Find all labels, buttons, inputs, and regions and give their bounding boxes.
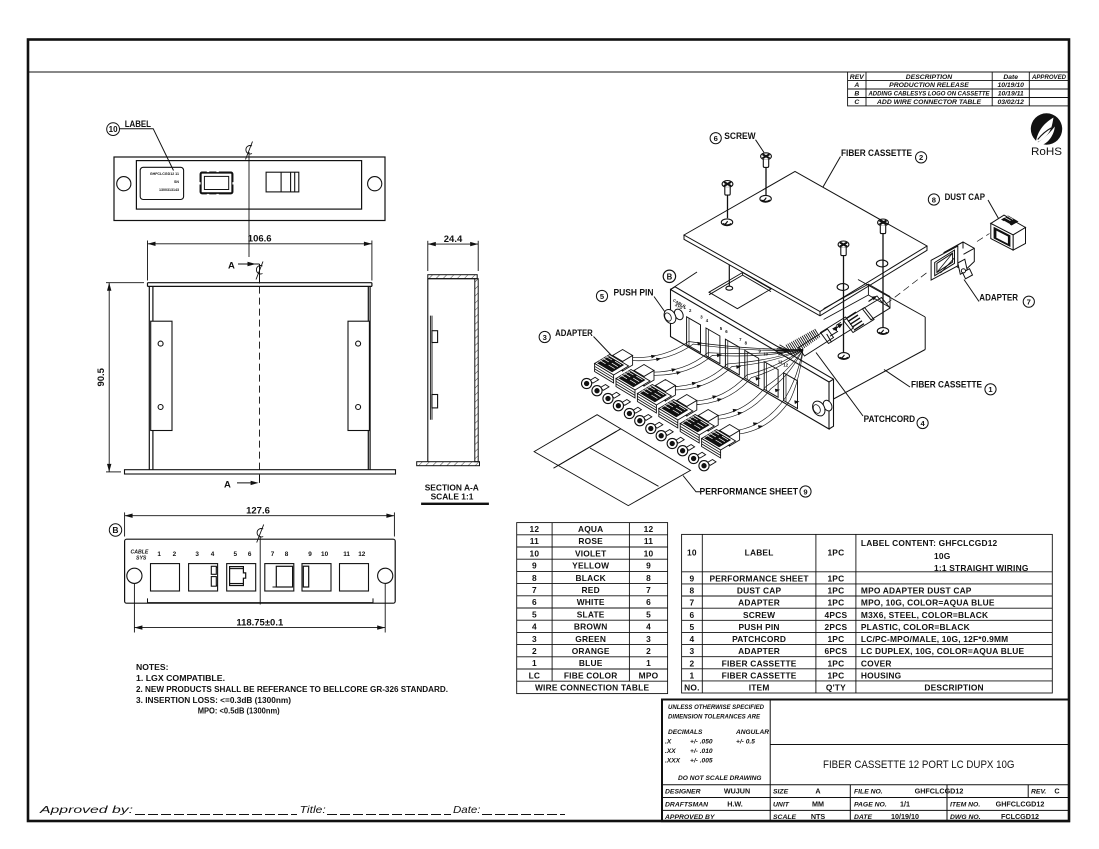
svg-text:3: 3 (195, 551, 199, 558)
svg-text:ITEM: ITEM (749, 683, 770, 693)
svg-text:+/- 0.5: +/- 0.5 (736, 738, 755, 745)
svg-text:REV.: REV. (1031, 789, 1046, 796)
svg-text:4: 4 (646, 622, 651, 632)
svg-text:PERFORMANCE SHEET: PERFORMANCE SHEET (709, 573, 809, 583)
svg-text:MPO, 10G, COLOR=AQUA BLUE: MPO, 10G, COLOR=AQUA BLUE (861, 598, 995, 608)
svg-text:DRAFTSMAN: DRAFTSMAN (665, 801, 709, 808)
svg-text:8: 8 (285, 551, 289, 558)
svg-text:11: 11 (343, 551, 350, 558)
svg-text:7: 7 (532, 585, 537, 595)
svg-text:NOTES:: NOTES: (136, 663, 169, 672)
svg-text:AQUA: AQUA (578, 524, 603, 534)
svg-text:2: 2 (532, 646, 537, 656)
svg-text:1PC: 1PC (827, 658, 844, 668)
svg-text:A: A (815, 787, 820, 796)
svg-text:REV: REV (850, 74, 865, 81)
svg-text:90.5: 90.5 (96, 367, 107, 386)
svg-text:FIBER CASSETTE: FIBER CASSETTE (722, 658, 797, 668)
svg-text:6: 6 (714, 134, 718, 143)
svg-text:8: 8 (689, 586, 694, 596)
svg-text:ADAPTER: ADAPTER (979, 293, 1018, 303)
svg-text:MPO: MPO (639, 670, 659, 680)
svg-text:ANGULAR: ANGULAR (735, 729, 769, 736)
svg-text:3. INSERTION LOSS: <=0.3dB (1: 3. INSERTION LOSS: <=0.3dB (1300nm) (136, 696, 291, 705)
svg-text:H.W.: H.W. (727, 799, 743, 808)
svg-text:PATCHCORD: PATCHCORD (732, 634, 786, 644)
svg-text:2PCS: 2PCS (825, 622, 848, 632)
svg-text:2: 2 (173, 551, 177, 558)
svg-text:11: 11 (644, 536, 653, 546)
svg-text:5: 5 (646, 609, 651, 619)
svg-text:9: 9 (646, 561, 651, 571)
svg-text:12: 12 (644, 524, 654, 534)
svg-text:PLASTIC, COLOR=BLACK: PLASTIC, COLOR=BLACK (861, 622, 970, 632)
svg-text:1PC: 1PC (827, 598, 844, 608)
svg-text:NTS: NTS (811, 812, 826, 821)
svg-text:UNIT: UNIT (773, 801, 790, 808)
svg-text:GHFCLCGD12 11: GHFCLCGD12 11 (150, 172, 179, 176)
svg-text:LABEL: LABEL (125, 119, 152, 129)
svg-text:APPROVED BY: APPROVED BY (664, 814, 716, 821)
svg-text:4: 4 (532, 622, 537, 632)
svg-text:9: 9 (689, 573, 694, 583)
svg-text:6: 6 (646, 597, 651, 607)
svg-text:1/1: 1/1 (900, 799, 910, 808)
svg-text:11: 11 (530, 536, 539, 546)
svg-text:A: A (853, 82, 859, 89)
svg-text:DATE: DATE (854, 814, 872, 821)
svg-text:M3X6, STEEL, COLOR=BLACK: M3X6, STEEL, COLOR=BLACK (861, 610, 988, 620)
svg-text:2: 2 (689, 658, 694, 668)
svg-text:3: 3 (543, 333, 547, 342)
svg-text:DO NOT SCALE DRAWING: DO NOT SCALE DRAWING (678, 775, 762, 782)
svg-text:RoHS: RoHS (1031, 146, 1062, 158)
svg-text:A: A (228, 261, 235, 272)
svg-text:LC DUPLEX, 10G, COLOR=AQUA BLU: LC DUPLEX, 10G, COLOR=AQUA BLUE (861, 646, 1025, 656)
svg-text:WUJUN: WUJUN (724, 787, 750, 796)
svg-text:FIBER CASSETTE: FIBER CASSETTE (911, 379, 982, 389)
svg-text:+/- .005: +/- .005 (690, 757, 713, 764)
svg-text:PAGE NO.: PAGE NO. (854, 801, 887, 808)
svg-text:BROWN: BROWN (574, 622, 608, 632)
svg-text:DECIMALS: DECIMALS (668, 729, 703, 736)
svg-text:DIMENSION TOLERANCES ARE: DIMENSION TOLERANCES ARE (668, 714, 761, 721)
svg-text:8: 8 (932, 195, 936, 204)
svg-text:DESIGNER: DESIGNER (665, 789, 701, 796)
svg-text:DESCRIPTION: DESCRIPTION (924, 683, 983, 693)
svg-text:3: 3 (646, 634, 651, 644)
svg-text:4: 4 (211, 551, 215, 558)
svg-text:ADAPTER: ADAPTER (738, 598, 780, 608)
svg-text:SCALE 1:1: SCALE 1:1 (431, 492, 474, 502)
svg-text:4PCS: 4PCS (825, 610, 848, 620)
svg-text:FCLCGD12: FCLCGD12 (1001, 812, 1039, 821)
svg-text:1. LGX COMPATIBLE.: 1. LGX COMPATIBLE. (136, 674, 225, 683)
svg-text:ORANGE: ORANGE (572, 646, 610, 656)
svg-text:DWG NO.: DWG NO. (950, 814, 981, 821)
svg-text:2: 2 (919, 153, 923, 162)
svg-text:Approved by:: Approved by: (38, 804, 133, 816)
svg-text:10: 10 (109, 125, 118, 134)
svg-text:9: 9 (803, 487, 807, 496)
svg-text:12: 12 (358, 551, 366, 558)
svg-text:LC: LC (529, 670, 541, 680)
svg-text:+/- .010: +/- .010 (690, 748, 713, 755)
svg-text:1: 1 (689, 670, 694, 680)
svg-text:Q'TY: Q'TY (826, 683, 846, 693)
svg-text:1: 1 (532, 658, 537, 668)
svg-text:03/02/12: 03/02/12 (997, 99, 1024, 106)
svg-text:C: C (854, 99, 859, 106)
svg-text:+/- .050: +/- .050 (690, 738, 713, 745)
svg-text:WHITE: WHITE (577, 597, 605, 607)
svg-text:ADAPTER: ADAPTER (555, 328, 593, 338)
svg-text:FIBE COLOR: FIBE COLOR (564, 670, 618, 680)
svg-text:1PC: 1PC (827, 670, 844, 680)
svg-text:FIBER CASSETTE: FIBER CASSETTE (722, 670, 797, 680)
svg-text:7: 7 (646, 585, 651, 595)
svg-text:106.6: 106.6 (248, 234, 272, 245)
svg-text:COVER: COVER (861, 658, 892, 668)
svg-text:1: 1 (157, 551, 161, 558)
svg-text:HOUSING: HOUSING (861, 670, 902, 680)
svg-text:127.6: 127.6 (246, 505, 270, 516)
svg-text:6PCS: 6PCS (825, 646, 848, 656)
svg-text:1PC: 1PC (827, 586, 844, 596)
svg-text:C: C (1054, 787, 1059, 796)
svg-text:SN: SN (174, 180, 179, 184)
svg-text:7: 7 (271, 551, 275, 558)
svg-text:1PC: 1PC (827, 634, 844, 644)
svg-text:DESCRIPTION: DESCRIPTION (906, 74, 954, 81)
svg-text:12: 12 (530, 524, 540, 534)
svg-text:B: B (854, 91, 859, 98)
svg-text:APPROVED: APPROVED (1031, 74, 1066, 81)
svg-text:SIZE: SIZE (773, 789, 789, 796)
svg-text:SYS: SYS (136, 556, 147, 562)
svg-text:SCALE: SCALE (773, 814, 797, 821)
svg-text:4: 4 (689, 634, 694, 644)
svg-text:PATCHCORD: PATCHCORD (864, 414, 916, 424)
svg-text:1:1 STRAIGHT WIRING: 1:1 STRAIGHT WIRING (934, 563, 1029, 573)
svg-text:VIOLET: VIOLET (575, 548, 607, 558)
svg-text:B: B (667, 272, 673, 281)
svg-text:10: 10 (644, 548, 654, 558)
svg-text:3: 3 (689, 646, 694, 656)
svg-text:MPO: <0.5dB (1300nm): MPO: <0.5dB (1300nm) (198, 707, 280, 716)
svg-text:1PC: 1PC (827, 573, 844, 583)
svg-text:FIBER CASSETTE: FIBER CASSETTE (841, 148, 912, 158)
svg-text:9: 9 (532, 561, 537, 571)
svg-text:ITEM NO.: ITEM NO. (950, 801, 980, 808)
svg-text:8: 8 (646, 573, 651, 583)
svg-text:PRODUCTION RELEASE: PRODUCTION RELEASE (889, 82, 969, 89)
svg-text:7: 7 (689, 598, 694, 608)
svg-text:GHFCLCGD12: GHFCLCGD12 (915, 787, 964, 796)
svg-text:2: 2 (646, 646, 651, 656)
svg-text:Date:: Date: (453, 804, 481, 816)
svg-text:Title:: Title: (300, 804, 326, 816)
svg-text:LABEL: LABEL (745, 548, 774, 558)
svg-text:PUSH PIN: PUSH PIN (614, 288, 654, 298)
svg-text:FILE NO.: FILE NO. (854, 789, 883, 796)
svg-text:10/19/10: 10/19/10 (891, 812, 919, 821)
svg-text:LABEL CONTENT: GHFCLCGD12: LABEL CONTENT: GHFCLCGD12 (861, 538, 998, 548)
svg-text:2. NEW PRODUCTS SHALL BE REFER: 2. NEW PRODUCTS SHALL BE REFERANCE TO BE… (136, 685, 448, 694)
svg-text:BLACK: BLACK (576, 573, 606, 583)
svg-text:1PC: 1PC (827, 548, 844, 558)
svg-text:A: A (224, 480, 231, 491)
svg-text:PUSH PIN: PUSH PIN (739, 622, 780, 632)
svg-text:Date: Date (1003, 74, 1018, 81)
svg-text:9: 9 (308, 551, 312, 558)
svg-text:10: 10 (530, 548, 540, 558)
svg-text:118.75±0.1: 118.75±0.1 (236, 617, 284, 628)
svg-text:BLUE: BLUE (579, 658, 603, 668)
svg-text:8: 8 (532, 573, 537, 583)
svg-text:SCREW: SCREW (743, 610, 775, 620)
svg-text:.XXX: .XXX (665, 757, 681, 764)
svg-text:B: B (112, 525, 118, 535)
svg-text:24.4: 24.4 (444, 234, 463, 245)
svg-text:1300313143: 1300313143 (159, 188, 179, 192)
svg-text:ADD WIRE CONNECTOR TABLE: ADD WIRE CONNECTOR TABLE (876, 99, 981, 106)
svg-text:6: 6 (689, 610, 694, 620)
svg-text:10G: 10G (934, 551, 950, 561)
svg-text:6: 6 (248, 551, 252, 558)
svg-text:SCREW: SCREW (724, 131, 756, 141)
svg-text:DUST CAP: DUST CAP (945, 192, 985, 202)
svg-text:5: 5 (234, 551, 238, 558)
svg-text:ROSE: ROSE (578, 536, 603, 546)
svg-text:YELLOW: YELLOW (572, 561, 609, 571)
svg-text:GHFCLCGD12: GHFCLCGD12 (996, 799, 1045, 808)
svg-text:6: 6 (532, 597, 537, 607)
svg-text:MM: MM (812, 799, 824, 808)
svg-text:MPO ADAPTER DUST CAP: MPO ADAPTER DUST CAP (861, 586, 972, 596)
svg-text:10/19/11: 10/19/11 (998, 91, 1024, 98)
svg-text:LC/PC-MPO/MALE, 10G, 12F*0.9MM: LC/PC-MPO/MALE, 10G, 12F*0.9MM (861, 634, 1008, 644)
svg-text:1: 1 (646, 658, 651, 668)
svg-text:GREEN: GREEN (575, 634, 606, 644)
svg-text:ADDING CABLESYS LOGO ON CASSET: ADDING CABLESYS LOGO ON CASSETTE (868, 91, 990, 98)
svg-text:.X: .X (665, 738, 672, 745)
svg-text:10: 10 (321, 551, 329, 558)
svg-text:RED: RED (582, 585, 600, 595)
svg-text:PERFORMANCE SHEET: PERFORMANCE SHEET (700, 487, 799, 497)
svg-text:3: 3 (532, 634, 537, 644)
svg-text:DUST CAP: DUST CAP (737, 586, 782, 596)
svg-text:.XX: .XX (665, 748, 676, 755)
svg-text:7: 7 (1027, 298, 1031, 307)
svg-text:NO.: NO. (684, 683, 700, 693)
svg-text:10/19/10: 10/19/10 (997, 82, 1024, 89)
svg-text:FIBER CASSETTE 12 PORT LC DUPX: FIBER CASSETTE 12 PORT LC DUPX 10G (823, 759, 1015, 771)
svg-text:UNLESS OTHERWISE SPECIFIED: UNLESS OTHERWISE SPECIFIED (668, 704, 764, 711)
svg-text:ADAPTER: ADAPTER (738, 646, 780, 656)
svg-text:SLATE: SLATE (577, 609, 605, 619)
svg-text:10: 10 (687, 548, 697, 558)
svg-text:5: 5 (689, 622, 694, 632)
svg-text:5: 5 (532, 609, 537, 619)
svg-text:10: 10 (763, 352, 768, 357)
svg-text:WIRE CONNECTION TABLE: WIRE CONNECTION TABLE (535, 683, 650, 693)
